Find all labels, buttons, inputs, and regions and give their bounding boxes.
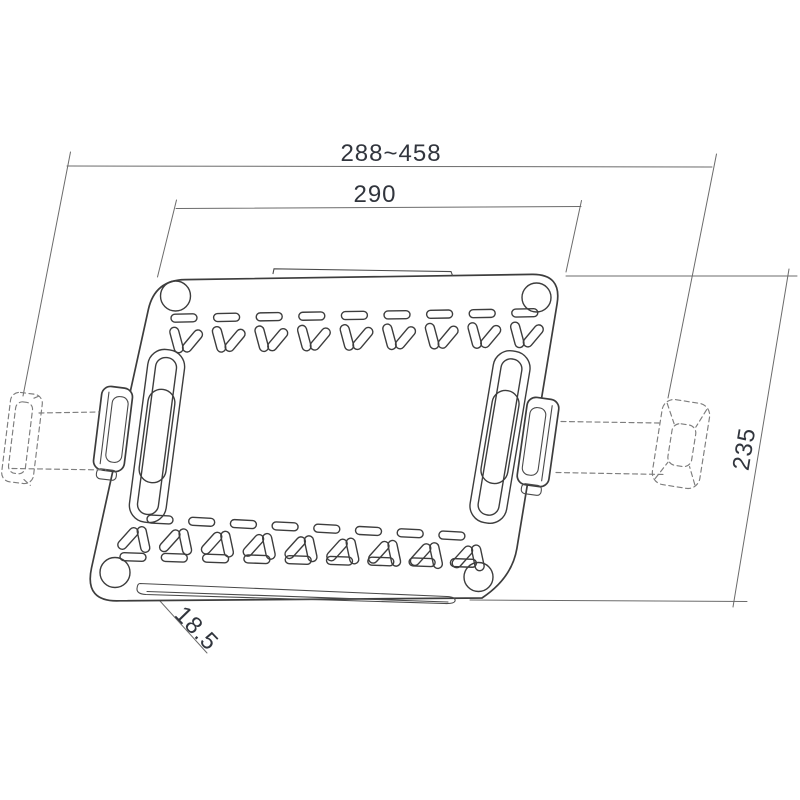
connector-dashes-right bbox=[556, 422, 665, 475]
dimension-label-lip: 18.5 bbox=[169, 601, 224, 656]
drawing-canvas: 288~458 290 235 18.5 bbox=[0, 0, 800, 800]
ext-line-depth-bottom bbox=[470, 600, 747, 602]
ghost-clip-right bbox=[651, 398, 712, 490]
technical-drawing-svg: 288~458 290 235 18.5 bbox=[0, 0, 800, 800]
ext-line-plate-width-right bbox=[566, 201, 582, 273]
tray-body bbox=[90, 269, 558, 604]
dimension-label-plate-width: 290 bbox=[353, 181, 396, 208]
ext-line-adjustable-width-left bbox=[23, 152, 71, 396]
tray-outline bbox=[90, 274, 558, 600]
ext-line-plate-width-left bbox=[158, 200, 177, 277]
connector-dashes-left bbox=[12, 412, 106, 470]
dim-plate-width: 290 bbox=[158, 181, 582, 277]
ghost-clip-left bbox=[1, 391, 44, 485]
back-lip-line bbox=[273, 269, 453, 276]
dimension-label-adjustable-width: 288~458 bbox=[340, 140, 441, 167]
